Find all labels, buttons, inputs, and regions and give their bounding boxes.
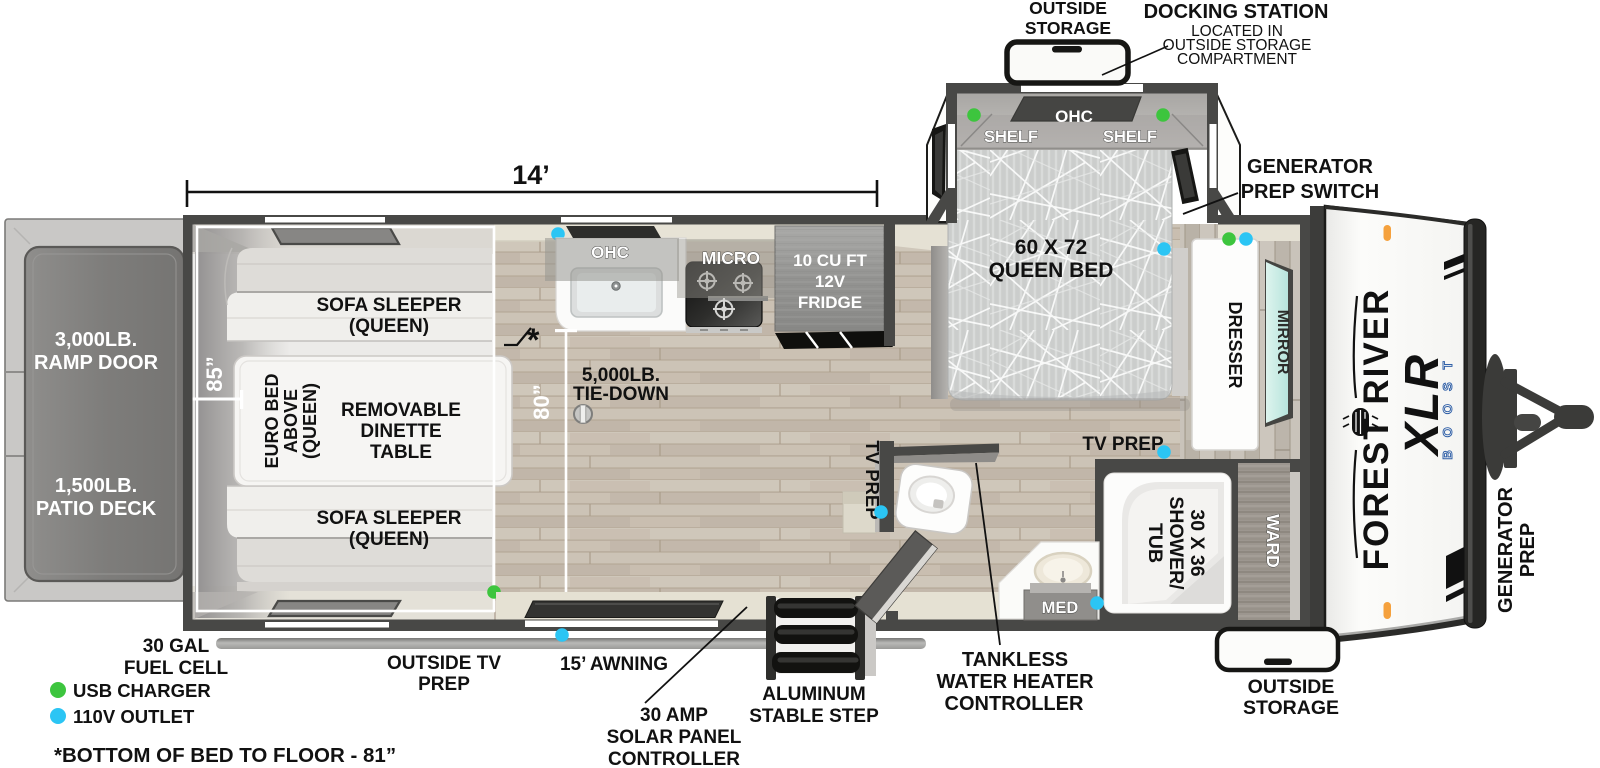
svg-text:DINETTE: DINETTE (360, 421, 441, 442)
svg-text:FRIDGE: FRIDGE (798, 293, 862, 312)
svg-text:*: * (527, 322, 540, 358)
svg-text:OUTSIDE TV: OUTSIDE TV (387, 653, 501, 674)
svg-text:COMPARTMENT: COMPARTMENT (1177, 51, 1298, 68)
svg-text:CONTROLLER: CONTROLLER (945, 693, 1084, 715)
svg-text:GENERATOR: GENERATOR (1247, 156, 1373, 178)
svg-text:WARD: WARD (1263, 514, 1283, 567)
svg-text:SHELF: SHELF (984, 128, 1038, 146)
svg-text:30 GAL: 30 GAL (143, 636, 210, 657)
svg-text:12V: 12V (815, 272, 846, 291)
svg-text:RAMP DOOR: RAMP DOOR (34, 352, 159, 374)
svg-text:SOFA SLEEPER: SOFA SLEEPER (317, 295, 462, 316)
svg-text:STORAGE: STORAGE (1243, 697, 1339, 719)
svg-text:OHC: OHC (591, 243, 629, 262)
svg-text:STORAGE: STORAGE (1025, 18, 1111, 38)
svg-text:3,000LB.: 3,000LB. (55, 329, 137, 351)
svg-text:MICRO: MICRO (702, 248, 760, 268)
svg-text:*BOTTOM OF BED TO FLOOR - 81”: *BOTTOM OF BED TO FLOOR - 81” (54, 744, 396, 767)
svg-text:85”: 85” (202, 356, 227, 391)
svg-text:OUTSIDE: OUTSIDE (1029, 0, 1107, 18)
svg-text:TABLE: TABLE (370, 442, 432, 463)
svg-text:60 X 72: 60 X 72 (1015, 236, 1087, 259)
svg-text:WATER HEATER: WATER HEATER (936, 671, 1094, 693)
svg-text:SHELF: SHELF (1103, 128, 1157, 146)
svg-text:(QUEEN): (QUEEN) (349, 529, 429, 550)
svg-text:MIRROR: MIRROR (1274, 310, 1291, 375)
svg-text:CONTROLLER: CONTROLLER (608, 749, 740, 768)
svg-text:USB CHARGER: USB CHARGER (73, 680, 211, 701)
svg-text:STABLE STEP: STABLE STEP (749, 706, 879, 727)
svg-text:15’ AWNING: 15’ AWNING (560, 654, 668, 675)
svg-text:14’: 14’ (512, 160, 550, 190)
svg-text:SOFA SLEEPER: SOFA SLEEPER (317, 508, 462, 529)
svg-text:TIE-DOWN: TIE-DOWN (573, 384, 669, 405)
svg-text:TV PREP: TV PREP (1082, 434, 1164, 455)
svg-text:MED: MED (1042, 599, 1079, 617)
svg-text:QUEEN BED: QUEEN BED (989, 259, 1114, 282)
svg-text:PREP: PREP (418, 674, 470, 695)
svg-text:SOLAR PANEL: SOLAR PANEL (607, 727, 742, 748)
svg-text:TANKLESS: TANKLESS (962, 649, 1068, 671)
svg-text:110V OUTLET: 110V OUTLET (73, 706, 195, 727)
svg-text:DRESSER: DRESSER (1225, 301, 1245, 388)
svg-text:(QUEEN): (QUEEN) (349, 316, 429, 337)
svg-text:FUEL CELL: FUEL CELL (124, 658, 229, 679)
svg-text:BOOST: BOOST (1440, 348, 1455, 459)
svg-text:30 AMP: 30 AMP (640, 705, 708, 726)
svg-text:ALUMINUM: ALUMINUM (762, 684, 865, 705)
svg-text:REMOVABLE: REMOVABLE (341, 400, 461, 421)
svg-text:80”: 80” (529, 384, 554, 419)
svg-text:OUTSIDE: OUTSIDE (1248, 676, 1335, 698)
svg-text:PREP SWITCH: PREP SWITCH (1241, 181, 1380, 203)
svg-text:OHC: OHC (1055, 107, 1093, 126)
svg-text:FOREST RIVER: FOREST RIVER (1357, 288, 1396, 571)
svg-text:10 CU FT: 10 CU FT (793, 251, 867, 270)
svg-text:1,500LB.: 1,500LB. (55, 475, 137, 497)
svg-text:PATIO DECK: PATIO DECK (36, 498, 157, 520)
svg-text:5,000LB.: 5,000LB. (582, 365, 660, 386)
svg-text:DOCKING STATION: DOCKING STATION (1144, 1, 1329, 23)
